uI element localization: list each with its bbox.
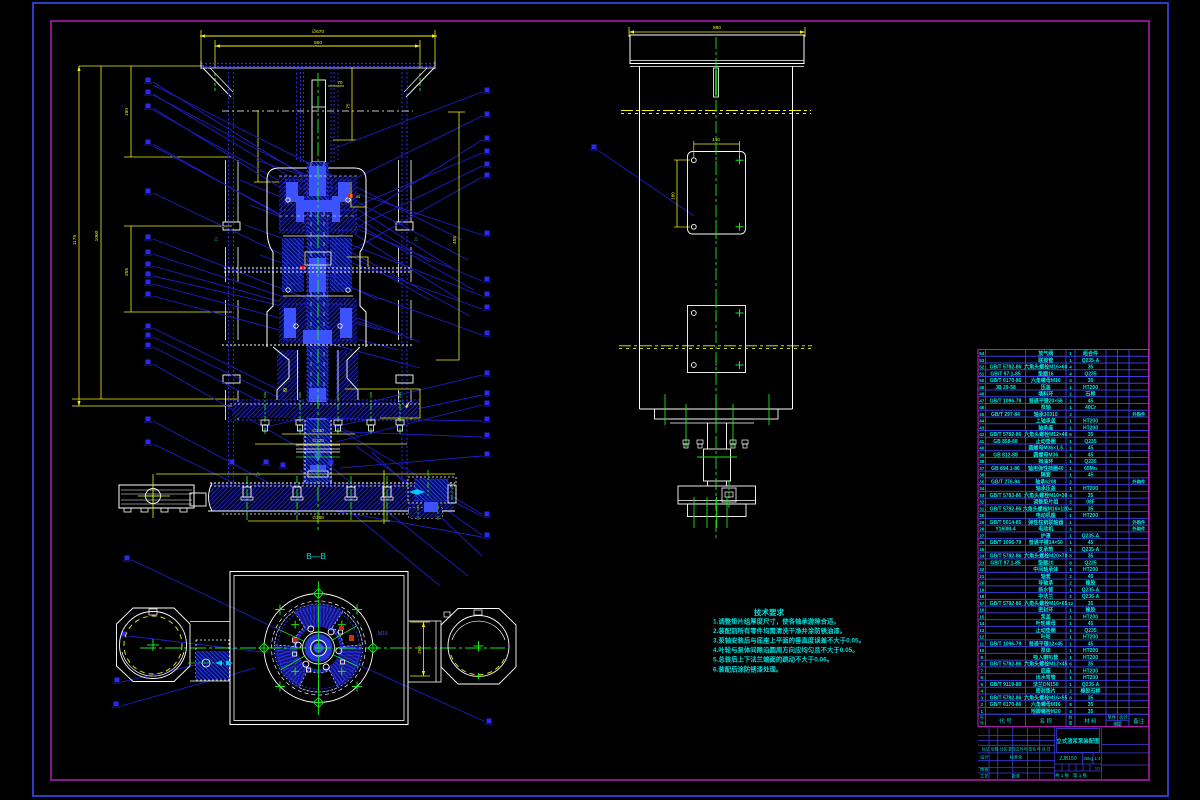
svg-text:5: 5 bbox=[980, 682, 983, 687]
svg-text:六角头螺栓M16×60: 六角头螺栓M16×60 bbox=[1024, 364, 1067, 371]
svg-text:1: 1 bbox=[1069, 419, 1072, 424]
svg-text:3.泵轴安装后与底座上平面的垂直度误差不大于0.05。: 3.泵轴安装后与底座上平面的垂直度误差不大于0.05。 bbox=[713, 636, 865, 645]
svg-text:六角头螺栓M12×45: 六角头螺栓M12×45 bbox=[1024, 661, 1067, 668]
svg-text:Y160M-4: Y160M-4 bbox=[995, 527, 1016, 533]
svg-text:1: 1 bbox=[1069, 466, 1072, 471]
svg-text:泵盖: 泵盖 bbox=[1041, 613, 1051, 620]
svg-text:Q235: Q235 bbox=[1084, 439, 1096, 445]
svg-text:1: 1 bbox=[1069, 621, 1072, 626]
svg-text:GB/T 276-94: GB/T 276-94 bbox=[991, 479, 1020, 485]
svg-text:HT200: HT200 bbox=[1083, 513, 1098, 519]
svg-text:轴套: 轴套 bbox=[1041, 573, 1051, 580]
svg-text:8: 8 bbox=[1069, 696, 1072, 701]
svg-text:底座: 底座 bbox=[1040, 668, 1051, 675]
svg-text:2: 2 bbox=[1069, 581, 1072, 586]
svg-text:外购件: 外购件 bbox=[1132, 478, 1146, 485]
svg-text:31: 31 bbox=[979, 506, 985, 511]
svg-text:75: 75 bbox=[346, 103, 351, 109]
svg-text:普通平键14×50: 普通平键14×50 bbox=[1029, 539, 1063, 546]
svg-text:4: 4 bbox=[1069, 493, 1072, 498]
svg-text:1.调整垫片组厚度尺寸，使各轴承游隙合适。: 1.调整垫片组厚度尺寸，使各轴承游隙合适。 bbox=[713, 617, 840, 626]
svg-text:45: 45 bbox=[1088, 398, 1094, 404]
svg-text:导轴承: 导轴承 bbox=[1038, 580, 1053, 587]
svg-text:隔套: 隔套 bbox=[1041, 472, 1051, 479]
svg-text:10: 10 bbox=[979, 648, 985, 653]
svg-text:1: 1 bbox=[1069, 641, 1072, 646]
svg-text:4: 4 bbox=[1069, 506, 1072, 511]
svg-text:HT200: HT200 bbox=[1083, 385, 1098, 391]
svg-text:22: 22 bbox=[979, 567, 985, 572]
svg-text:24: 24 bbox=[979, 554, 985, 559]
svg-text:51: 51 bbox=[979, 371, 985, 376]
svg-text:密封环: 密封环 bbox=[1038, 607, 1053, 614]
svg-text:45: 45 bbox=[1088, 473, 1094, 479]
svg-text:190: 190 bbox=[124, 108, 130, 116]
svg-text:26: 26 bbox=[979, 540, 985, 545]
svg-text:1: 1 bbox=[1069, 567, 1072, 572]
svg-text:GB/T 6170-86: GB/T 6170-86 bbox=[990, 702, 1022, 708]
svg-text:△: △ bbox=[414, 236, 418, 242]
svg-text:垫圈16: 垫圈16 bbox=[1038, 370, 1054, 377]
svg-text:量: 量 bbox=[1068, 720, 1072, 727]
svg-text:1: 1 bbox=[1069, 520, 1072, 525]
svg-text:38: 38 bbox=[979, 459, 985, 464]
svg-text:GB/T 6170-86: GB/T 6170-86 bbox=[990, 378, 1022, 384]
svg-text:18: 18 bbox=[979, 594, 985, 599]
svg-text:1:4: 1:4 bbox=[1094, 756, 1101, 761]
svg-text:放气阀: 放气阀 bbox=[1037, 350, 1053, 357]
svg-text:3: 3 bbox=[980, 696, 983, 701]
svg-text:弹性柱销联轴器: 弹性柱销联轴器 bbox=[1028, 519, 1064, 526]
svg-text:GB/T 5782-86: GB/T 5782-86 bbox=[990, 365, 1022, 371]
svg-text:圆螺母M36×1.5: 圆螺母M36×1.5 bbox=[1028, 445, 1063, 452]
svg-text:1: 1 bbox=[1069, 669, 1072, 674]
svg-text:25: 25 bbox=[979, 547, 985, 552]
svg-text:共 1 张: 共 1 张 bbox=[1055, 772, 1070, 779]
svg-text:70: 70 bbox=[337, 80, 343, 85]
svg-text:泵轴: 泵轴 bbox=[1041, 404, 1051, 411]
svg-text:HT200: HT200 bbox=[1083, 614, 1098, 620]
svg-text:1: 1 bbox=[1069, 608, 1072, 613]
svg-text:Q235-A: Q235-A bbox=[1082, 682, 1100, 688]
svg-text:2: 2 bbox=[1069, 689, 1072, 694]
svg-text:总计: 总计 bbox=[1119, 714, 1128, 721]
svg-text:Q235: Q235 bbox=[1084, 560, 1096, 566]
svg-text:1: 1 bbox=[1069, 351, 1072, 356]
svg-text:HT200: HT200 bbox=[1083, 669, 1098, 675]
svg-text:六角螺母M16: 六角螺母M16 bbox=[1031, 701, 1061, 708]
svg-text:1: 1 bbox=[1069, 675, 1072, 680]
svg-text:普通平键12×45: 普通平键12×45 bbox=[1029, 640, 1063, 647]
svg-text:GB/T 97.1-85: GB/T 97.1-85 bbox=[990, 371, 1021, 377]
svg-text:8: 8 bbox=[1069, 554, 1072, 559]
svg-text:4.叶轮与泵体间隙沿圆周方向应均匀且不大于0.05。: 4.叶轮与泵体间隙沿圆周方向应均匀且不大于0.05。 bbox=[713, 645, 859, 654]
svg-text:30: 30 bbox=[979, 513, 985, 518]
svg-text:外购件: 外购件 bbox=[1132, 526, 1146, 533]
svg-text:45: 45 bbox=[356, 194, 361, 199]
svg-text:∅320: ∅320 bbox=[312, 438, 324, 443]
svg-text:HT200: HT200 bbox=[1083, 655, 1098, 661]
svg-text:4: 4 bbox=[980, 689, 983, 694]
svg-text:35: 35 bbox=[1088, 378, 1094, 384]
svg-text:止动垫圈: 止动垫圈 bbox=[1036, 438, 1056, 445]
svg-text:1: 1 bbox=[1069, 527, 1072, 532]
svg-text:6: 6 bbox=[1069, 662, 1072, 667]
svg-text:电动机: 电动机 bbox=[1038, 526, 1053, 533]
svg-text:六角头螺栓M12×40: 六角头螺栓M12×40 bbox=[1024, 431, 1067, 438]
svg-text:1: 1 bbox=[1069, 398, 1072, 403]
svg-text:52: 52 bbox=[979, 365, 985, 370]
svg-text:1: 1 bbox=[1069, 405, 1072, 410]
svg-text:技术要求: 技术要求 bbox=[754, 607, 785, 617]
svg-text:19: 19 bbox=[979, 587, 985, 592]
svg-text:GB/T 1096-79: GB/T 1096-79 bbox=[990, 540, 1022, 546]
svg-text:材 料: 材 料 bbox=[1084, 717, 1097, 725]
svg-text:54: 54 bbox=[979, 351, 985, 356]
svg-text:设计: 设计 bbox=[980, 754, 988, 761]
svg-text:GB/T 97.1-85: GB/T 97.1-85 bbox=[990, 560, 1021, 566]
svg-text:B—B: B—B bbox=[306, 551, 326, 561]
svg-text:叶轮: 叶轮 bbox=[1041, 634, 1051, 641]
svg-text:单件: 单件 bbox=[1107, 714, 1116, 721]
svg-text:27: 27 bbox=[979, 533, 985, 538]
svg-text:备注: 备注 bbox=[1133, 717, 1145, 725]
svg-text:垫圈20: 垫圈20 bbox=[1038, 559, 1054, 566]
svg-text:6.装配后涂防锈漆处理。: 6.装配后涂防锈漆处理。 bbox=[713, 664, 782, 673]
svg-text:代 号: 代 号 bbox=[999, 717, 1012, 725]
svg-text:1: 1 bbox=[1069, 635, 1072, 640]
svg-text:轴用弹性挡圈40: 轴用弹性挡圈40 bbox=[1028, 465, 1064, 472]
svg-text:上轴承盖: 上轴承盖 bbox=[1036, 418, 1056, 425]
svg-text:14: 14 bbox=[979, 621, 985, 626]
svg-text:调整垫片组: 调整垫片组 bbox=[1033, 499, 1058, 506]
svg-text:08F: 08F bbox=[1086, 500, 1095, 506]
svg-text:GB/T 297-84: GB/T 297-84 bbox=[991, 412, 1020, 418]
svg-text:35: 35 bbox=[1088, 365, 1094, 371]
svg-text:4: 4 bbox=[1069, 378, 1072, 383]
svg-text:13: 13 bbox=[979, 628, 985, 633]
svg-text:40: 40 bbox=[979, 446, 985, 451]
svg-text:47: 47 bbox=[979, 398, 985, 403]
svg-text:45: 45 bbox=[1088, 621, 1094, 627]
svg-text:49: 49 bbox=[979, 385, 985, 390]
svg-text:M16: M16 bbox=[378, 631, 388, 637]
svg-text:1: 1 bbox=[1069, 486, 1072, 491]
svg-text:标记: 标记 bbox=[982, 747, 990, 752]
svg-text:第 1 张: 第 1 张 bbox=[1073, 772, 1088, 779]
svg-text:6: 6 bbox=[1069, 432, 1072, 437]
svg-text:Q235-A: Q235-A bbox=[1082, 594, 1100, 600]
svg-text:45: 45 bbox=[1088, 641, 1094, 647]
svg-text:35: 35 bbox=[1088, 493, 1094, 499]
svg-text:标准化: 标准化 bbox=[1010, 754, 1023, 761]
svg-text:六角头螺栓M16×65: 六角头螺栓M16×65 bbox=[1024, 600, 1067, 607]
svg-text:GB/T 1096-79: GB/T 1096-79 bbox=[990, 641, 1022, 647]
svg-text:46: 46 bbox=[979, 405, 985, 410]
svg-text:1: 1 bbox=[1069, 614, 1072, 619]
svg-text:GB/T 5782-86: GB/T 5782-86 bbox=[990, 662, 1022, 668]
svg-text:35: 35 bbox=[979, 479, 985, 484]
svg-text:HT200: HT200 bbox=[1083, 648, 1098, 654]
svg-text:2: 2 bbox=[1069, 500, 1072, 505]
svg-text:中法兰: 中法兰 bbox=[1038, 593, 1053, 600]
svg-text:批准: 批准 bbox=[1012, 773, 1020, 780]
svg-text:地脚螺栓M20: 地脚螺栓M20 bbox=[1031, 708, 1061, 715]
svg-text:39: 39 bbox=[979, 452, 985, 457]
svg-text:35: 35 bbox=[1088, 662, 1094, 668]
svg-text:GB/T 5782-86: GB/T 5782-86 bbox=[990, 696, 1022, 702]
svg-text:43: 43 bbox=[979, 425, 985, 430]
svg-text:4: 4 bbox=[1069, 709, 1072, 714]
svg-text:1: 1 bbox=[1069, 628, 1072, 633]
svg-text:GB 894.1-86: GB 894.1-86 bbox=[991, 466, 1020, 472]
svg-text:2.装配前所有零件均需清洗干净并涂防锈油漆。: 2.装配前所有零件均需清洗干净并涂防锈油漆。 bbox=[713, 626, 846, 635]
svg-text:处数 分区 更改文件号 签名 年.月.日: 处数 分区 更改文件号 签名 年.月.日 bbox=[991, 747, 1051, 752]
svg-text:1: 1 bbox=[1069, 473, 1072, 478]
svg-text:组合件: 组合件 bbox=[1083, 350, 1098, 357]
svg-text:2: 2 bbox=[1069, 392, 1072, 397]
svg-text:4: 4 bbox=[1069, 365, 1072, 370]
svg-text:Q235: Q235 bbox=[1084, 628, 1096, 634]
svg-text:2: 2 bbox=[1069, 412, 1072, 417]
svg-text:1060: 1060 bbox=[94, 230, 100, 241]
svg-text:橡胶石棉: 橡胶石棉 bbox=[1080, 688, 1100, 695]
svg-text:六角头螺栓M20×70: 六角头螺栓M20×70 bbox=[1024, 553, 1067, 560]
svg-text:8: 8 bbox=[1069, 702, 1072, 707]
svg-text:45: 45 bbox=[979, 412, 985, 417]
svg-text:1: 1 bbox=[1069, 452, 1072, 457]
svg-text:1: 1 bbox=[1069, 446, 1072, 451]
svg-text:35: 35 bbox=[1088, 554, 1094, 560]
svg-text:审核: 审核 bbox=[980, 766, 989, 773]
svg-text:35: 35 bbox=[1088, 506, 1094, 512]
svg-text:11: 11 bbox=[979, 641, 984, 646]
svg-text:轴承6208: 轴承6208 bbox=[1035, 478, 1056, 485]
svg-text:六角头螺栓M16×55: 六角头螺栓M16×55 bbox=[1024, 695, 1067, 702]
svg-text:37: 37 bbox=[979, 466, 985, 471]
svg-text:35: 35 bbox=[1088, 601, 1094, 607]
svg-text:40Cr: 40Cr bbox=[1085, 405, 1096, 411]
svg-text:GB/T 5782-86: GB/T 5782-86 bbox=[990, 554, 1022, 560]
svg-text:44: 44 bbox=[979, 419, 985, 424]
svg-text:8: 8 bbox=[1069, 560, 1072, 565]
svg-text:1: 1 bbox=[1069, 533, 1072, 538]
svg-text:ZJB150: ZJB150 bbox=[1059, 756, 1076, 762]
svg-text:180: 180 bbox=[671, 192, 676, 200]
svg-text:41: 41 bbox=[979, 439, 985, 444]
svg-text:HT200: HT200 bbox=[1083, 567, 1098, 573]
svg-text:GB 812-88: GB 812-88 bbox=[993, 452, 1018, 458]
svg-text:GB/T 5783-86: GB/T 5783-86 bbox=[990, 493, 1022, 499]
svg-text:45: 45 bbox=[1088, 540, 1094, 546]
svg-text:12: 12 bbox=[979, 635, 985, 640]
svg-text:455: 455 bbox=[452, 236, 458, 244]
svg-text:出水弯管: 出水弯管 bbox=[1036, 674, 1056, 681]
svg-text:外购件: 外购件 bbox=[1132, 519, 1146, 526]
svg-text:⊘: ⊘ bbox=[282, 388, 287, 394]
svg-text:35: 35 bbox=[1088, 696, 1094, 702]
svg-text:15: 15 bbox=[979, 614, 985, 619]
svg-text:普通平键20×56: 普通平键20×56 bbox=[1029, 397, 1063, 404]
svg-text:名 称: 名 称 bbox=[1039, 717, 1052, 725]
svg-text:32: 32 bbox=[979, 500, 985, 505]
svg-text:∅240: ∅240 bbox=[312, 428, 324, 433]
svg-text:HT200: HT200 bbox=[1083, 635, 1098, 641]
svg-text:12: 12 bbox=[1068, 601, 1074, 606]
svg-text:重量: 重量 bbox=[1113, 721, 1122, 728]
svg-text:轴承30310: 轴承30310 bbox=[1034, 411, 1058, 418]
svg-text:HT200: HT200 bbox=[1083, 675, 1098, 681]
svg-text:石棉: 石棉 bbox=[1084, 391, 1095, 398]
svg-text:止动垫圈: 止动垫圈 bbox=[1036, 627, 1056, 634]
svg-text:吸入喇叭管: 吸入喇叭管 bbox=[1033, 654, 1058, 661]
svg-text:1: 1 bbox=[1069, 513, 1072, 518]
svg-text:六角螺母M16: 六角螺母M16 bbox=[1031, 377, 1061, 384]
svg-text:电动机座: 电动机座 bbox=[1036, 512, 1056, 519]
svg-text:65Mn: 65Mn bbox=[1084, 466, 1097, 472]
svg-text:GB/T 1096-79: GB/T 1096-79 bbox=[990, 398, 1022, 404]
svg-text:HT200: HT200 bbox=[1083, 425, 1098, 431]
svg-text:GB 858-88: GB 858-88 bbox=[993, 439, 1018, 445]
svg-text:扬水管: 扬水管 bbox=[1038, 586, 1053, 593]
svg-text:255: 255 bbox=[124, 268, 130, 276]
svg-text:Q235-A: Q235-A bbox=[1082, 533, 1100, 539]
svg-text:轴承压盖: 轴承压盖 bbox=[1036, 485, 1056, 492]
svg-text:填料环: 填料环 bbox=[1038, 391, 1053, 398]
svg-text:压盖: 压盖 bbox=[1041, 384, 1051, 391]
svg-text:17: 17 bbox=[979, 601, 985, 606]
svg-text:圆螺母M36: 圆螺母M36 bbox=[1033, 451, 1058, 458]
svg-text:1: 1 bbox=[1069, 682, 1072, 687]
svg-text:Q235: Q235 bbox=[1084, 459, 1096, 465]
svg-text:橡胶: 橡胶 bbox=[1085, 607, 1095, 614]
svg-text:HT200: HT200 bbox=[1083, 486, 1098, 492]
svg-text:48: 48 bbox=[979, 392, 985, 397]
svg-text:GB/T 9119-88: GB/T 9119-88 bbox=[990, 682, 1022, 688]
svg-text:Q235-A: Q235-A bbox=[1082, 358, 1100, 364]
svg-text:2: 2 bbox=[980, 702, 983, 707]
svg-text:4: 4 bbox=[1069, 371, 1072, 376]
svg-text:六角头螺栓M10×30: 六角头螺栓M10×30 bbox=[1024, 492, 1067, 499]
svg-text:1/1: 1/1 bbox=[1095, 767, 1100, 771]
svg-text:1: 1 bbox=[980, 709, 983, 714]
svg-text:5.总装后上下法兰端面的跳动不大于0.06。: 5.总装后上下法兰端面的跳动不大于0.06。 bbox=[713, 655, 833, 664]
svg-text:联接管: 联接管 bbox=[1038, 357, 1053, 364]
svg-text:250: 250 bbox=[417, 646, 422, 654]
svg-text:53: 53 bbox=[979, 358, 985, 363]
svg-text:HT200: HT200 bbox=[1083, 419, 1098, 425]
svg-text:立式渣浆泵装配图: 立式渣浆泵装配图 bbox=[1056, 737, 1100, 745]
svg-text:2: 2 bbox=[1069, 574, 1072, 579]
svg-text:1: 1 bbox=[1069, 587, 1072, 592]
svg-text:23: 23 bbox=[979, 560, 985, 565]
svg-text:2: 2 bbox=[1069, 594, 1072, 599]
svg-text:GB/T 5014-85: GB/T 5014-85 bbox=[990, 520, 1022, 526]
svg-text:1: 1 bbox=[1069, 425, 1072, 430]
svg-text:1: 1 bbox=[1069, 459, 1072, 464]
svg-text:橡胶: 橡胶 bbox=[1085, 580, 1095, 587]
svg-text:∅368: ∅368 bbox=[312, 515, 324, 520]
svg-text:2: 2 bbox=[1069, 479, 1072, 484]
svg-text:16: 16 bbox=[979, 608, 985, 613]
svg-text:1: 1 bbox=[1069, 439, 1072, 444]
svg-text:Q235-A: Q235-A bbox=[1082, 587, 1100, 593]
svg-text:GB/T 5782-86: GB/T 5782-86 bbox=[990, 506, 1022, 512]
svg-text:20: 20 bbox=[979, 581, 985, 586]
svg-text:1175: 1175 bbox=[72, 235, 78, 246]
svg-text:1: 1 bbox=[1069, 385, 1072, 390]
svg-text:1: 1 bbox=[1069, 540, 1072, 545]
svg-text:560: 560 bbox=[314, 40, 322, 46]
svg-text:密封垫片: 密封垫片 bbox=[1036, 688, 1056, 695]
svg-text:△: △ bbox=[214, 236, 218, 242]
svg-text:9: 9 bbox=[980, 655, 983, 660]
svg-text:6: 6 bbox=[980, 675, 983, 680]
svg-text:1: 1 bbox=[1069, 358, 1072, 363]
svg-text:1: 1 bbox=[1069, 655, 1072, 660]
svg-text:35: 35 bbox=[1088, 702, 1094, 708]
svg-text:工艺: 工艺 bbox=[980, 774, 988, 779]
svg-text:挡油环: 挡油环 bbox=[1037, 458, 1053, 465]
svg-text:护罩: 护罩 bbox=[1041, 532, 1051, 539]
svg-text:外购件: 外购件 bbox=[1132, 411, 1146, 418]
svg-text:JB 29-58: JB 29-58 bbox=[995, 385, 1016, 391]
svg-text:六角头螺栓M16×120: 六角头螺栓M16×120 bbox=[1023, 505, 1069, 512]
svg-text:45: 45 bbox=[1088, 446, 1094, 452]
svg-text:21: 21 bbox=[979, 574, 985, 579]
svg-text:中间轴承体: 中间轴承体 bbox=[1033, 566, 1059, 573]
svg-text:35kg: 35kg bbox=[1083, 756, 1093, 761]
svg-text:34: 34 bbox=[979, 486, 985, 491]
svg-text:29: 29 bbox=[979, 520, 985, 525]
svg-text:∅670: ∅670 bbox=[312, 29, 325, 35]
svg-text:50: 50 bbox=[979, 378, 985, 383]
svg-text:880: 880 bbox=[713, 25, 721, 31]
svg-text:支承筒: 支承筒 bbox=[1037, 546, 1053, 553]
svg-text:1: 1 bbox=[1069, 547, 1072, 552]
svg-text:Q235-A: Q235-A bbox=[1082, 547, 1100, 553]
svg-text:28: 28 bbox=[979, 527, 985, 532]
svg-text:33: 33 bbox=[979, 493, 985, 498]
svg-text:Q235: Q235 bbox=[1084, 371, 1096, 377]
svg-text:GB/T 5782-86: GB/T 5782-86 bbox=[990, 432, 1022, 438]
svg-text:法兰DN150: 法兰DN150 bbox=[1033, 681, 1059, 688]
svg-text:36: 36 bbox=[979, 473, 985, 478]
svg-text:45: 45 bbox=[1088, 452, 1094, 458]
svg-text:7: 7 bbox=[980, 669, 983, 674]
svg-text:8: 8 bbox=[980, 662, 983, 667]
svg-text:1: 1 bbox=[1069, 648, 1072, 653]
svg-text:轴承座: 轴承座 bbox=[1038, 424, 1053, 431]
svg-text:45: 45 bbox=[1088, 574, 1094, 580]
svg-text:叶轮螺母: 叶轮螺母 bbox=[1036, 620, 1056, 627]
svg-text:GB/T 5782-86: GB/T 5782-86 bbox=[990, 601, 1022, 607]
svg-text:35: 35 bbox=[1088, 432, 1094, 438]
svg-text:42: 42 bbox=[979, 432, 985, 437]
svg-text:35: 35 bbox=[1088, 709, 1094, 715]
svg-text:泵体: 泵体 bbox=[1041, 647, 1052, 654]
